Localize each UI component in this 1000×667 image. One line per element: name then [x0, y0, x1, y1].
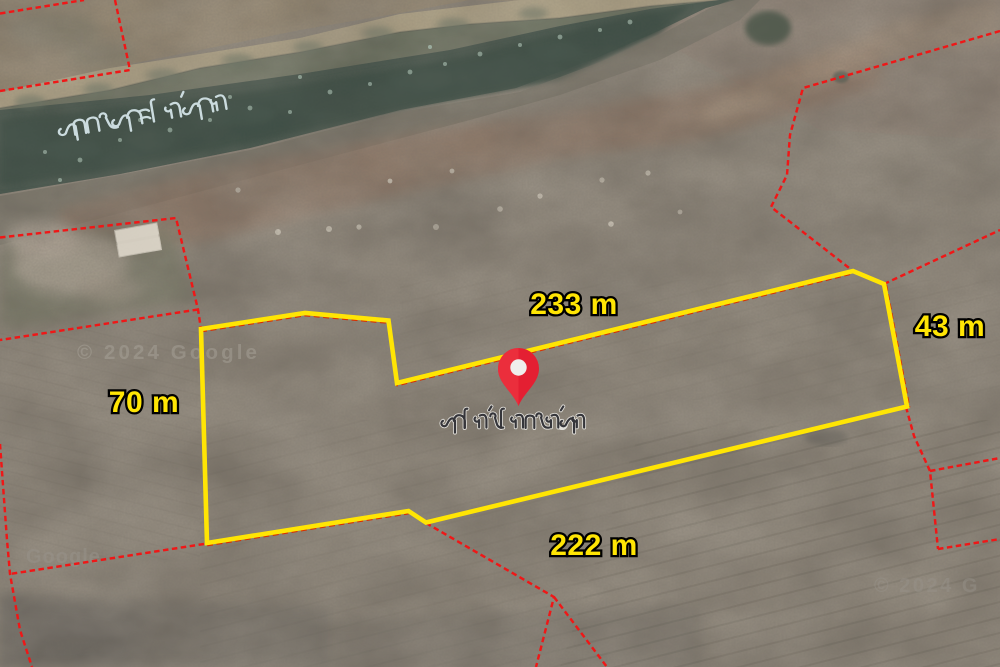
svg-text:70 m: 70 m: [109, 386, 179, 419]
svg-text:© 2024 G: © 2024 G: [874, 575, 980, 597]
svg-text:233 m: 233 m: [530, 288, 618, 321]
svg-text:222 m: 222 m: [550, 529, 638, 562]
svg-text:43 m: 43 m: [915, 310, 985, 343]
svg-text:Google: Google: [26, 546, 101, 568]
svg-text:© 2024 Google: © 2024 Google: [77, 341, 260, 364]
